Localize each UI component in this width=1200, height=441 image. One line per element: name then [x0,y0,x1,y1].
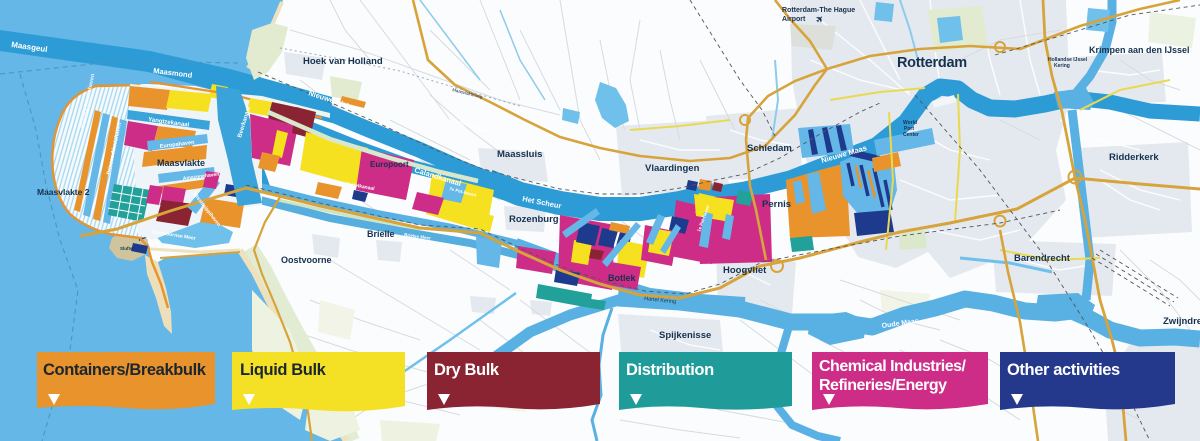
svg-text:Kering: Kering [1054,63,1070,69]
svg-text:Chemical Industries/: Chemical Industries/ [819,358,967,375]
svg-text:Europoort: Europoort [370,160,409,169]
svg-text:Botlek: Botlek [608,273,637,283]
svg-text:Airport: Airport [782,16,806,23]
svg-text:Other activities: Other activities [1007,361,1120,379]
svg-text:Rotterdam: Rotterdam [897,55,967,71]
svg-text:Refineries/Energy: Refineries/Energy [819,377,947,394]
svg-text:Center: Center [903,132,919,138]
svg-text:Hoogvliet: Hoogvliet [723,265,767,276]
svg-text:Ridderkerk: Ridderkerk [1109,152,1159,163]
svg-text:Dry Bulk: Dry Bulk [434,361,500,379]
svg-text:Maasvlakte: Maasvlakte [157,158,205,168]
svg-text:Slufter: Slufter [120,246,135,251]
svg-text:Brielle: Brielle [367,229,395,239]
svg-text:Schiedam: Schiedam [747,143,792,154]
svg-text:Barendrecht: Barendrecht [1014,253,1071,264]
svg-text:Krimpen aan den IJssel: Krimpen aan den IJssel [1089,45,1190,55]
svg-text:Zwijndrecht: Zwijndrecht [1163,316,1200,327]
svg-text:Oostvoorne: Oostvoorne [281,255,332,265]
svg-text:Spijkenisse: Spijkenisse [659,330,711,341]
svg-text:Distribution: Distribution [626,361,714,379]
svg-text:Maasvlakte 2: Maasvlakte 2 [37,187,90,197]
svg-text:Containers/Breakbulk: Containers/Breakbulk [43,361,207,379]
svg-text:Pernis: Pernis [762,199,791,210]
svg-text:Maassluis: Maassluis [497,149,542,160]
svg-text:Hoek van Holland: Hoek van Holland [303,56,383,67]
svg-text:Liquid Bulk: Liquid Bulk [240,361,327,379]
svg-text:Vlaardingen: Vlaardingen [645,163,700,174]
svg-text:Rozenburg: Rozenburg [509,214,559,225]
